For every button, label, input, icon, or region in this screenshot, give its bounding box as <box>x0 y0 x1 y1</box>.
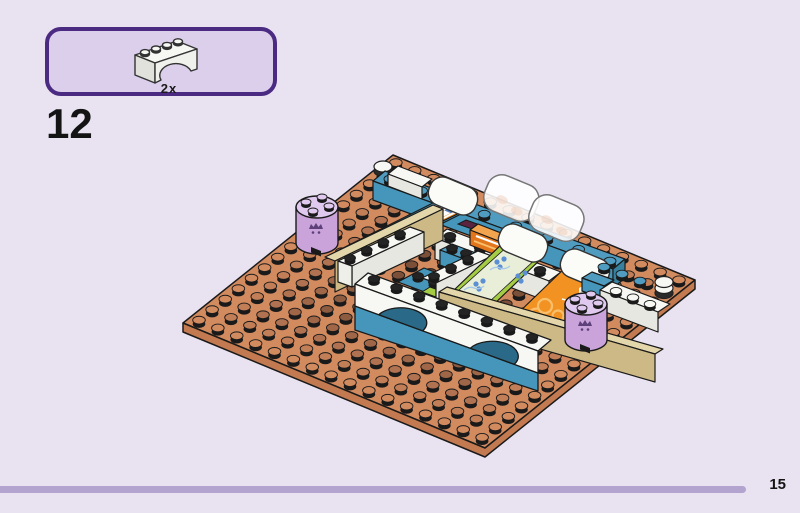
page-number: 15 <box>769 476 786 493</box>
white-round-stack <box>655 277 673 299</box>
lavender-round-brick-left <box>296 194 338 257</box>
build-illustration <box>0 0 800 513</box>
lavender-round-brick-right <box>565 291 607 354</box>
footer-divider-line <box>0 486 746 493</box>
instruction-page: { "page": { "background": "#e9e3f1", "st… <box>0 0 800 513</box>
